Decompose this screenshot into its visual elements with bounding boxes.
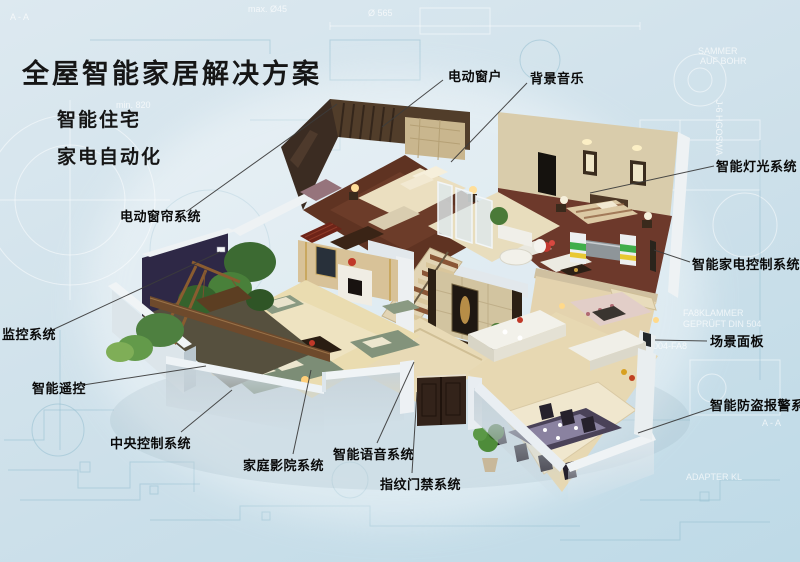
callout-line-home-theater-system <box>293 370 311 454</box>
subtitle-line-2: 家电自动化 <box>57 142 322 169</box>
callout-line-smart-remote-control <box>83 366 206 385</box>
callout-line-smart-voice-system <box>377 362 414 443</box>
subtitle-line-1: 智能住宅 <box>57 105 322 132</box>
callout-line-central-control-system <box>181 390 232 432</box>
title-block: 全屋智能家居解决方案 智能住宅 家电自动化 <box>22 52 322 169</box>
page-title: 全屋智能家居解决方案 <box>22 52 322 91</box>
callout-line-smart-burglar-alarm-system <box>638 408 712 433</box>
callout-line-scene-panel <box>655 340 707 341</box>
callout-line-electric-window <box>382 80 443 127</box>
callout-line-fingerprint-access-system <box>412 392 417 473</box>
callout-line-background-music <box>451 83 527 162</box>
callout-line-surveillance-system <box>50 252 220 331</box>
poster: A - Amax. Ø45Ø 565min. 820SAMMERAUF BOHR… <box>0 0 800 562</box>
callout-line-smart-lighting-system <box>590 166 714 193</box>
callout-line-smart-appliance-control-system <box>654 250 690 262</box>
